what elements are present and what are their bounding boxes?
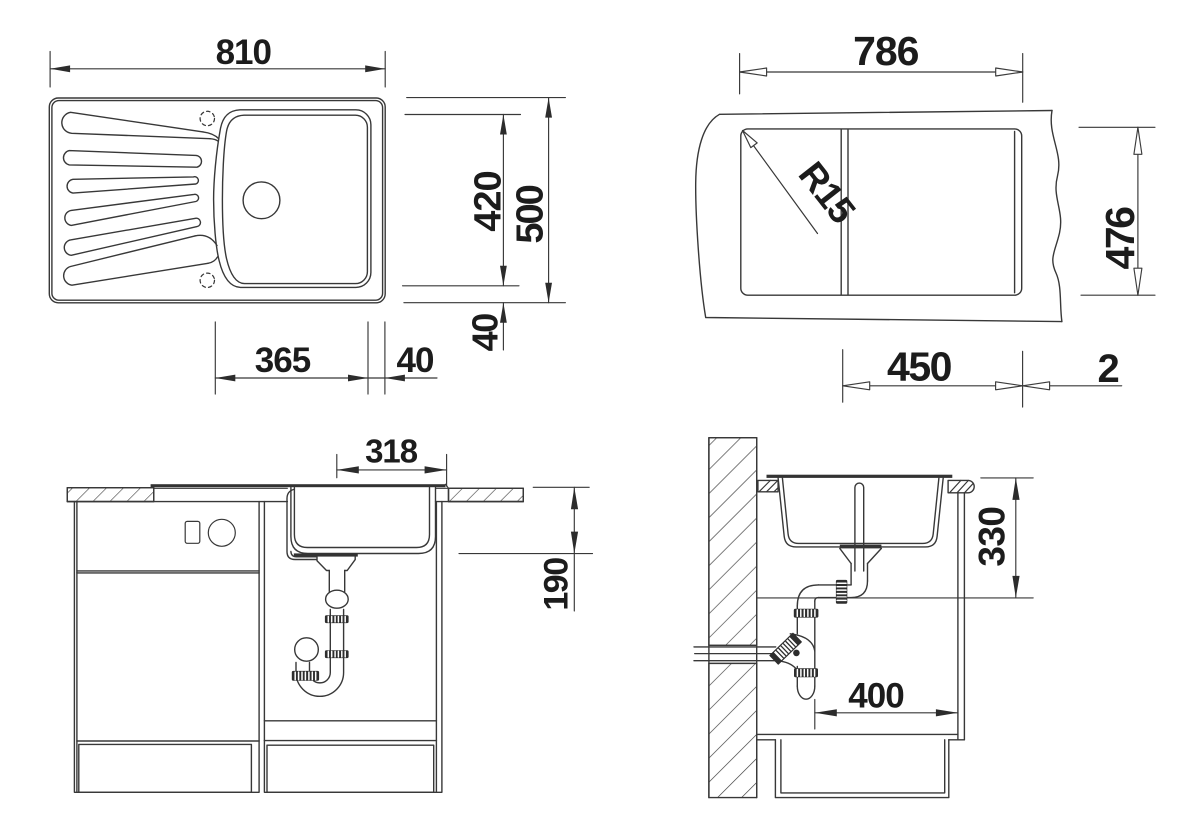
- svg-text:365: 365: [255, 341, 311, 380]
- svg-text:786: 786: [853, 28, 919, 74]
- svg-text:420: 420: [468, 171, 510, 231]
- svg-text:R15: R15: [791, 154, 864, 231]
- svg-text:40: 40: [397, 341, 434, 380]
- svg-text:500: 500: [510, 185, 552, 243]
- svg-text:330: 330: [972, 507, 1013, 567]
- svg-text:810: 810: [216, 33, 272, 72]
- svg-text:318: 318: [365, 433, 418, 470]
- svg-text:190: 190: [538, 558, 576, 611]
- svg-text:400: 400: [848, 677, 904, 716]
- svg-text:2: 2: [1097, 347, 1119, 391]
- svg-text:450: 450: [887, 344, 952, 390]
- svg-text:40: 40: [464, 314, 505, 352]
- svg-text:476: 476: [1097, 207, 1143, 270]
